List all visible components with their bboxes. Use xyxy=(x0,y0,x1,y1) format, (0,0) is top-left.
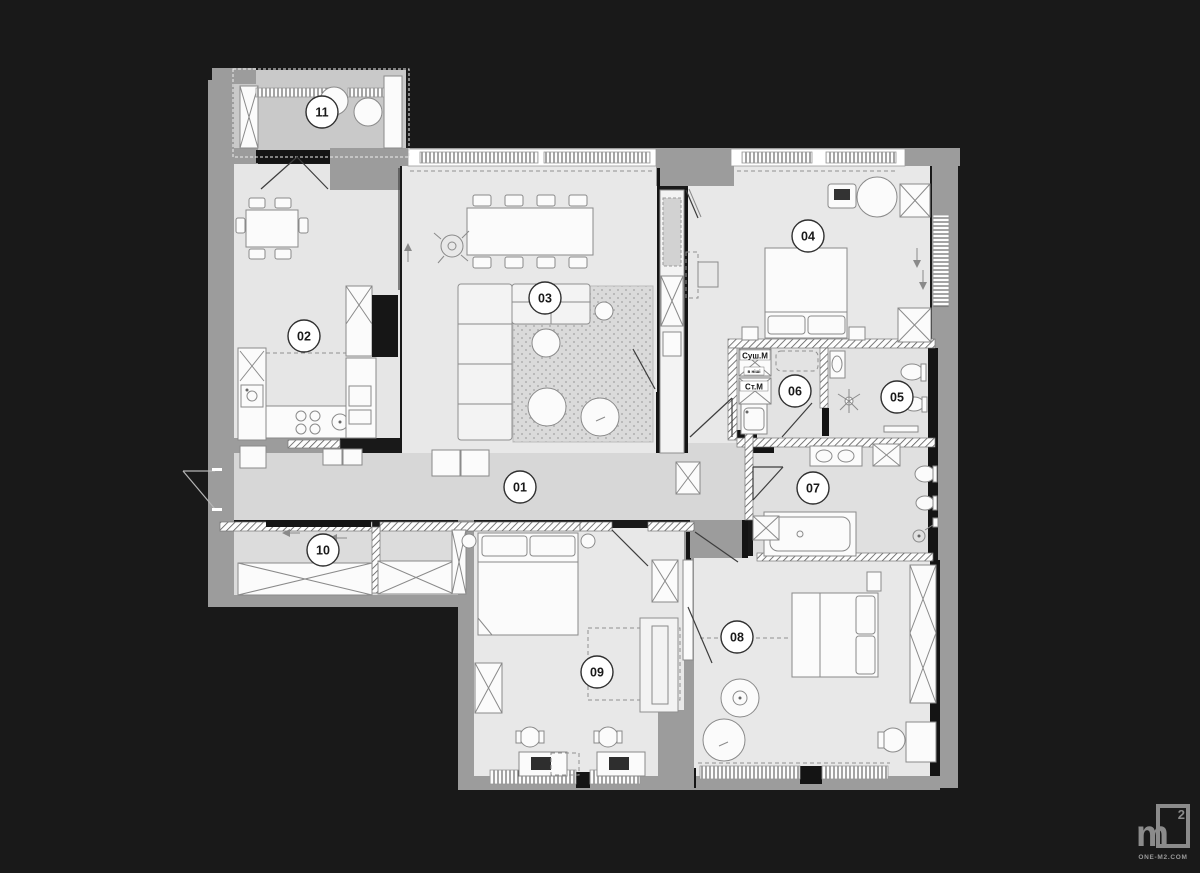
wardrobe-column xyxy=(660,190,684,453)
svg-text:10: 10 xyxy=(316,544,330,558)
svg-text:05: 05 xyxy=(890,391,904,405)
pouf-symbol xyxy=(532,329,560,357)
room-badge-07: 07 xyxy=(797,472,829,504)
bedside-lamp-symbol xyxy=(462,534,476,548)
svg-text:01: 01 xyxy=(513,481,527,495)
pouf-symbol xyxy=(703,719,745,761)
shoe-cabinet-symbol xyxy=(676,462,700,494)
room-badge-10: 10 xyxy=(307,534,339,566)
room-badge-01: 01 xyxy=(504,471,536,503)
wardrobe-symbol xyxy=(652,560,678,602)
room-badge-06: 06 xyxy=(779,375,811,407)
room-badge-08: 08 xyxy=(721,621,753,653)
cabinet-symbol xyxy=(873,444,900,466)
side-table-symbol xyxy=(595,302,613,320)
room-badge-05: 05 xyxy=(881,381,913,413)
room-badge-03: 03 xyxy=(529,282,561,314)
logo-square: m 2 xyxy=(1156,804,1190,848)
logo-website-label: ONE-M2.COM xyxy=(1128,854,1198,861)
sink-symbol xyxy=(830,351,845,378)
round-chair-symbol xyxy=(857,177,897,217)
bed-symbol xyxy=(462,533,595,635)
svg-text:04: 04 xyxy=(801,230,815,244)
cabinet-symbol xyxy=(343,449,362,465)
cabinet-symbol xyxy=(461,450,489,476)
kitchen-counter-left xyxy=(238,348,266,440)
logo-letter: m xyxy=(1136,815,1169,852)
laundry-sink-symbol xyxy=(741,404,767,434)
room-badge-04: 04 xyxy=(792,220,824,252)
logo-superscript: 2 xyxy=(1178,807,1185,822)
svg-text:09: 09 xyxy=(590,666,604,680)
room-badge-11: 11 xyxy=(306,96,338,128)
room-badge-09: 09 xyxy=(581,656,613,688)
cabinet-symbol xyxy=(753,516,779,540)
wardrobe-symbol xyxy=(475,663,502,713)
bidet-symbol xyxy=(916,496,937,510)
svg-text:03: 03 xyxy=(538,292,552,306)
cabinet-symbol xyxy=(432,450,460,476)
svg-text:07: 07 xyxy=(806,482,820,496)
svg-text:06: 06 xyxy=(788,385,802,399)
svg-text:11: 11 xyxy=(315,106,328,120)
balcony-bench-symbol xyxy=(384,76,402,148)
nightstand-symbol xyxy=(867,572,881,591)
chair-symbol xyxy=(881,728,905,752)
double-sink-symbol xyxy=(810,446,862,466)
nightstand-symbol xyxy=(849,327,865,340)
cabinet-symbol xyxy=(323,449,342,465)
one-m2-logo: m 2 ONE-M2.COM xyxy=(1128,798,1198,868)
window-side xyxy=(933,215,949,307)
floor-plan-canvas: Суш.М в ніші Ст.М xyxy=(0,0,1200,873)
pouf-symbol xyxy=(528,388,566,426)
dryer-label: Суш.М xyxy=(742,352,768,361)
console-symbol xyxy=(640,618,678,712)
pouf-symbol xyxy=(581,398,619,436)
cabinet-symbol xyxy=(240,446,266,468)
svg-text:08: 08 xyxy=(730,631,744,645)
bedside-lamp-symbol xyxy=(581,534,595,548)
dryer-note-label: в ніші xyxy=(748,369,761,374)
laptop-icon xyxy=(834,189,850,200)
kitchen-column xyxy=(372,295,398,357)
bench-symbol xyxy=(884,426,918,432)
svg-text:02: 02 xyxy=(297,330,311,344)
wardrobe-symbol xyxy=(910,565,936,703)
toilet-symbol xyxy=(915,466,937,482)
room-badge-02: 02 xyxy=(288,320,320,352)
floor-plan-drawing: Суш.М в ніші Ст.М xyxy=(0,0,1200,873)
toilet-symbol xyxy=(901,364,926,381)
wardrobe-symbol xyxy=(240,86,258,148)
nightstand-symbol xyxy=(742,327,758,340)
balcony-chair-symbol xyxy=(354,98,382,126)
window-bedroom-08 xyxy=(700,766,800,779)
washer-label: Ст.М xyxy=(745,383,763,392)
